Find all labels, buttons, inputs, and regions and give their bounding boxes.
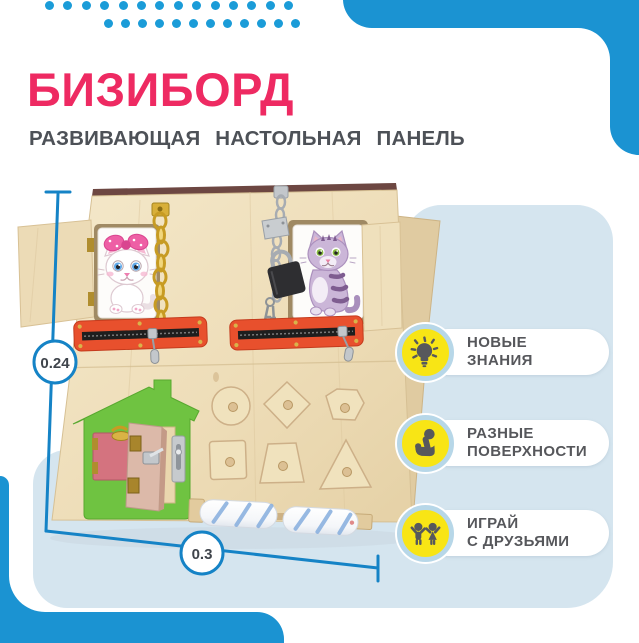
feature-line1: РАЗНЫЕ <box>467 425 609 443</box>
dot-decoration <box>211 1 220 10</box>
dot-decoration <box>172 19 181 28</box>
product-card: БИЗИБОРД РАЗВИВАЮЩАЯ НАСТОЛЬНАЯ ПАНЕЛЬ <box>0 0 639 643</box>
feature-circle <box>397 324 454 381</box>
friends-icon <box>409 517 442 550</box>
feature-line1: ИГРАЙ <box>467 515 609 533</box>
busy-board-photo: 0.24 0.3 <box>0 170 639 643</box>
dot-decoration <box>206 19 215 28</box>
dot-decoration <box>223 19 232 28</box>
page-title: БИЗИБОРД <box>27 62 294 117</box>
dot-decoration <box>63 1 72 10</box>
dot-decoration <box>174 1 183 10</box>
dot-decoration <box>137 1 146 10</box>
dot-decoration <box>155 1 164 10</box>
right-door-flap <box>362 222 402 331</box>
dot-decoration <box>119 1 128 10</box>
feature-badge-knowledge: НОВЫЕ ЗНАНИЯ <box>397 324 609 381</box>
dot-decoration <box>100 1 109 10</box>
width-dimension-label: 0.3 <box>192 546 213 563</box>
feature-line2: ПОВЕРХНОСТИ <box>467 443 609 461</box>
dot-decoration <box>240 19 249 28</box>
height-dimension-label: 0.24 <box>40 355 70 372</box>
dot-decoration <box>189 19 198 28</box>
dot-decoration <box>266 1 275 10</box>
touch-icon <box>409 427 442 460</box>
dot-decoration <box>155 19 164 28</box>
dots-decoration <box>0 0 639 32</box>
feature-line2: ЗНАНИЯ <box>467 352 609 370</box>
dot-decoration <box>138 19 147 28</box>
dot-decoration <box>247 1 256 10</box>
lightbulb-icon <box>409 336 442 369</box>
feature-line2: С ДРУЗЬЯМИ <box>467 533 609 551</box>
dot-decoration <box>192 1 201 10</box>
dot-decoration <box>45 1 54 10</box>
dot-decoration <box>229 1 238 10</box>
dot-decoration <box>291 19 300 28</box>
dot-decoration <box>274 19 283 28</box>
dot-decoration <box>104 19 113 28</box>
dot-decoration <box>284 1 293 10</box>
feature-badge-friends: ИГРАЙ С ДРУЗЬЯМИ <box>397 505 609 562</box>
page-subtitle: РАЗВИВАЮЩАЯ НАСТОЛЬНАЯ ПАНЕЛЬ <box>29 127 465 151</box>
dot-decoration <box>82 1 91 10</box>
dot-decoration <box>257 19 266 28</box>
feature-circle <box>397 505 454 562</box>
feature-badge-textures: РАЗНЫЕ ПОВЕРХНОСТИ <box>397 415 609 472</box>
feature-line1: НОВЫЕ <box>467 334 609 352</box>
dot-decoration <box>121 19 130 28</box>
feature-circle <box>397 415 454 472</box>
